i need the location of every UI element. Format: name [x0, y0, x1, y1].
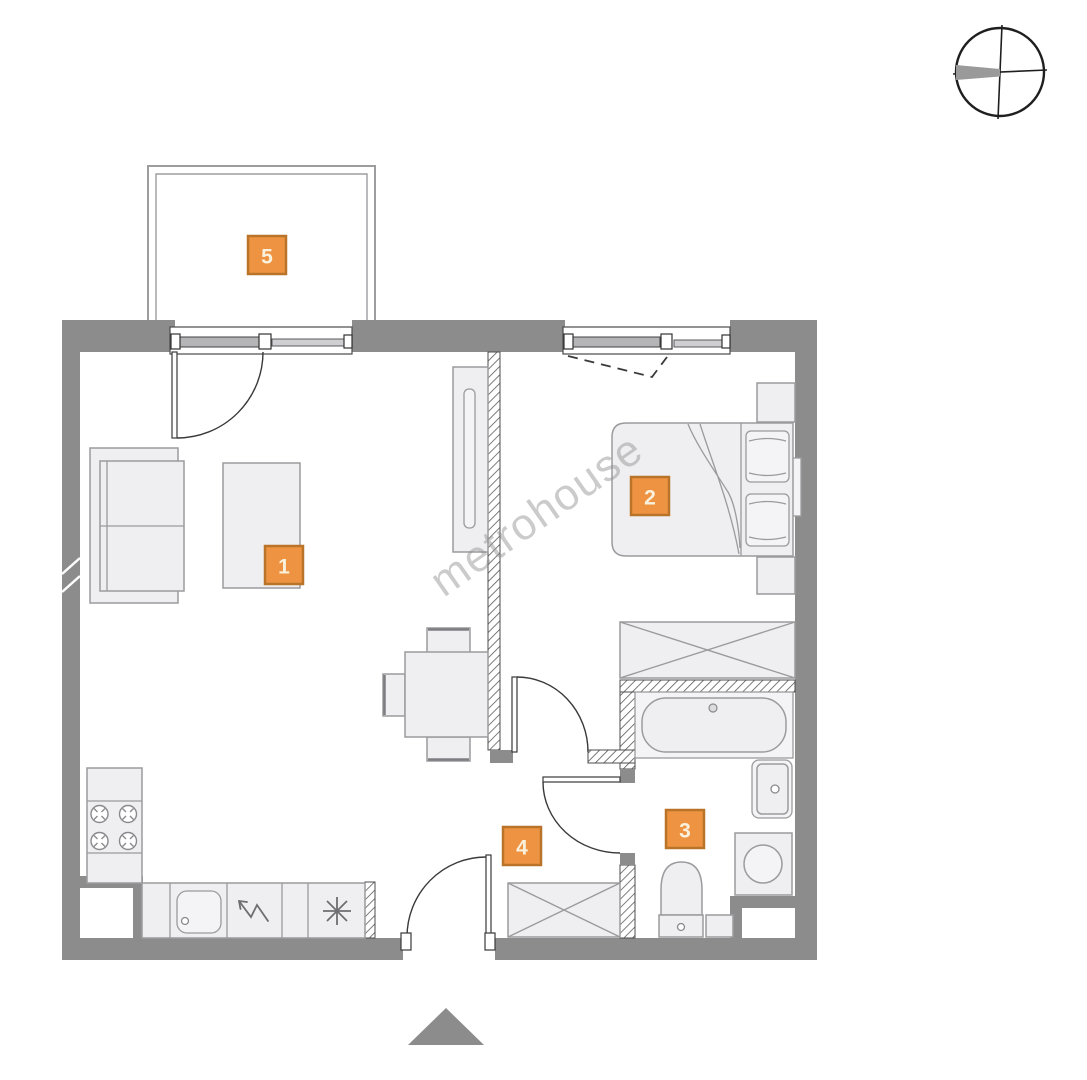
wardrobe-sliding-door	[464, 389, 475, 528]
window-post	[722, 335, 730, 348]
door-swing-arc	[543, 782, 620, 853]
window-post	[171, 334, 180, 349]
door-swing-arc	[517, 677, 588, 752]
bedroom-door	[512, 677, 588, 752]
label-number: 2	[644, 487, 656, 510]
door-swing-arc	[177, 352, 263, 438]
wall-cap-bath-door-bottom	[620, 853, 635, 865]
label-number: 4	[516, 837, 528, 860]
washbasin	[752, 760, 792, 818]
toilet-bowl	[661, 862, 702, 915]
partition-bathroom-lower	[620, 865, 635, 938]
window-post	[259, 334, 271, 349]
entrance-arrow-icon	[408, 1008, 484, 1045]
burner-icon	[120, 806, 137, 823]
balcony-door	[172, 352, 263, 438]
chair-top	[427, 628, 470, 653]
window-post	[661, 334, 672, 349]
door-jamb	[485, 933, 495, 950]
bedroom	[612, 383, 801, 678]
washing-machine-drum-icon	[744, 845, 782, 883]
door-swing-arc	[407, 857, 486, 937]
nightstand-top	[757, 383, 795, 422]
stove-counter	[87, 768, 142, 883]
hallway	[508, 883, 620, 937]
kitchen	[87, 768, 365, 938]
bathtub	[635, 692, 793, 758]
bathroom-cabinet	[706, 915, 733, 937]
wall-cap-bath-door-top	[620, 769, 635, 783]
basin-drain-icon	[771, 785, 779, 793]
fridge-asterisk-icon	[323, 897, 351, 925]
partition-bedroom-south	[588, 750, 635, 763]
window-panel	[272, 339, 344, 346]
door-leaf	[543, 777, 620, 782]
door-leaf	[172, 352, 177, 438]
partition-bedroom-bathroom	[620, 680, 795, 692]
kitchen-sink	[177, 891, 221, 933]
label-number: 1	[278, 556, 290, 579]
door-leaf	[512, 677, 517, 752]
burner-icon	[91, 806, 108, 823]
chair-left	[383, 674, 405, 716]
chair-bottom	[427, 737, 470, 761]
door-leaf	[486, 855, 491, 937]
window-post	[564, 334, 573, 349]
bedroom-window-assembly	[563, 327, 730, 377]
wall-bottom-right	[495, 938, 815, 960]
balcony-window-assembly	[170, 327, 352, 354]
wardrobe-hallway	[508, 883, 620, 937]
label-number: 3	[679, 820, 691, 843]
toilet	[659, 862, 703, 937]
door-jamb	[401, 933, 411, 950]
window-swing-dashed	[568, 356, 667, 377]
room-label-4: 4	[503, 827, 541, 865]
partition-kitchen-stub	[365, 882, 375, 938]
compass-icon	[953, 25, 1047, 119]
entrance-door	[401, 855, 495, 950]
dining-table	[405, 652, 488, 737]
window-post	[344, 335, 352, 348]
wall-right	[795, 320, 817, 960]
bathroom-door	[543, 777, 620, 853]
dining-set	[383, 628, 488, 761]
bathtub-drain-icon	[709, 704, 717, 712]
window-opening-panel	[572, 337, 660, 347]
burner-icon	[120, 833, 137, 850]
wall-cap-bedroom-door	[490, 750, 513, 763]
room-label-1: 1	[265, 546, 303, 584]
window-panel	[674, 340, 722, 347]
room-label-5: 5	[248, 236, 286, 274]
sink-drain-icon	[182, 918, 189, 925]
washing-machine	[735, 833, 792, 895]
wall-top-middle	[352, 320, 565, 352]
wall-bottom-left	[62, 938, 403, 960]
label-number: 5	[261, 246, 273, 269]
balcony-door-panel	[179, 337, 259, 347]
nightstand-bottom	[757, 557, 795, 594]
wardrobe-bedroom	[620, 622, 795, 678]
wall-left	[62, 320, 80, 960]
toilet-button-icon	[678, 924, 685, 931]
wall-niche-band-right	[730, 896, 795, 908]
room-label-3: 3	[666, 810, 704, 848]
room-label-2: 2	[631, 477, 669, 515]
burner-icon	[91, 833, 108, 850]
floor-plan: metrohouse 1 2 3 4 5	[0, 0, 1087, 1080]
